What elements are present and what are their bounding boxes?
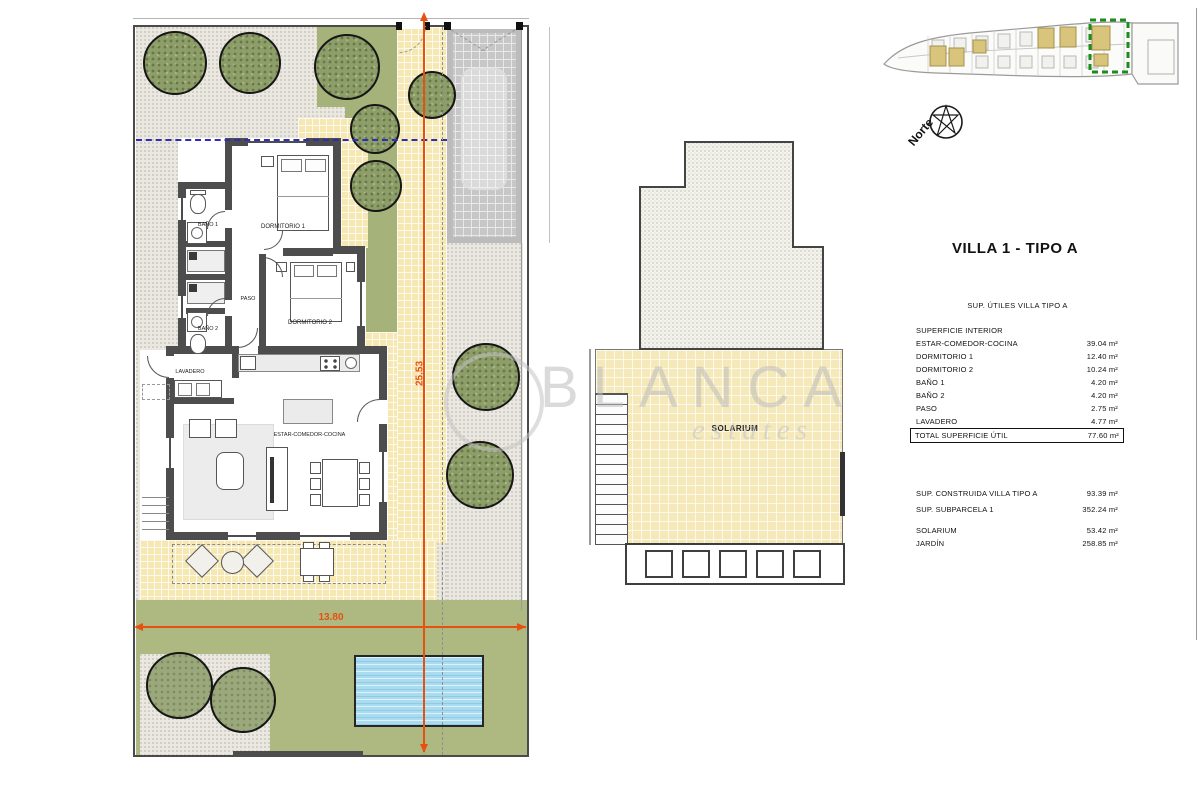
- table-row: SOLARIUM53.42 m²: [916, 524, 1118, 537]
- table-row: ESTAR-COMEDOR-COCINA39.04 m²: [916, 337, 1118, 350]
- car: [461, 68, 507, 190]
- fence: [233, 751, 363, 757]
- table-total-row: TOTAL SUPERFICIE ÚTIL77.60 m²: [910, 428, 1124, 443]
- room-label-bano1: BAÑO 1: [187, 221, 229, 229]
- table-section-header: SUPERFICIE INTERIOR: [916, 324, 1118, 337]
- solarium-roof-plan: [580, 130, 880, 620]
- table-row: BAÑO 24.20 m²: [916, 389, 1118, 402]
- table-row: JARDÍN258.85 m²: [916, 537, 1118, 550]
- table-row: DORMITORIO 210.24 m²: [916, 363, 1118, 376]
- dimension-arrow-left: [134, 623, 143, 631]
- bluedash: [136, 139, 447, 141]
- site-overview-map: [878, 14, 1190, 102]
- summary-table: SUP. CONSTRUIDA VILLA TIPO A93.39 m² SUP…: [916, 486, 1118, 550]
- dimension-arrow-top: [420, 12, 428, 21]
- overview-annex: [1132, 23, 1178, 84]
- compass-circle: [930, 106, 962, 138]
- post: [444, 22, 451, 30]
- table-row: PASO2.75 m²: [916, 402, 1118, 415]
- sheet-border-line: [1196, 8, 1197, 640]
- topline: [133, 18, 529, 19]
- post: [516, 22, 523, 30]
- outline2: [549, 27, 550, 243]
- table-subtitle: SUP. ÚTILES VILLA TIPO A: [945, 301, 1090, 310]
- innline: [521, 27, 522, 610]
- room-label-lavadero: LAVADERO: [168, 368, 212, 376]
- dimension-label-width: 13.80: [296, 612, 366, 623]
- room-label-paso: PASO: [233, 295, 263, 303]
- room-label-bano2: BAÑO 2: [187, 325, 229, 333]
- table-row: SUP. SUBPARCELA 1352.24 m²: [916, 502, 1118, 518]
- north-compass: Norte: [902, 92, 982, 158]
- room-label-estar-comedor-cocina: ESTAR-COMEDOR-COCINA: [262, 431, 357, 439]
- room-label-solarium: SOLARIUM: [690, 424, 780, 433]
- dimension-label-height: 25.53: [415, 352, 426, 396]
- dimension-line-horizontal: [136, 626, 526, 628]
- roof-outline: [640, 142, 823, 349]
- room-label-dormitorio1: DORMITORIO 1: [248, 223, 318, 231]
- table-row: SUP. CONSTRUIDA VILLA TIPO A93.39 m²: [916, 486, 1118, 502]
- plan-sheet: BAÑO 1 DORMITORIO 1 PASO BAÑO 2 DORMITOR…: [0, 0, 1200, 800]
- table-row: BAÑO 14.20 m²: [916, 376, 1118, 389]
- plan-title: VILLA 1 - TIPO A: [925, 240, 1105, 257]
- room-label-dormitorio2: DORMITORIO 2: [275, 319, 345, 327]
- table-row: DORMITORIO 112.40 m²: [916, 350, 1118, 363]
- surface-table: SUPERFICIE INTERIOR ESTAR-COMEDOR-COCINA…: [916, 324, 1118, 428]
- graydash: [442, 27, 443, 755]
- wgap: [451, 24, 516, 29]
- table-row: LAVADERO4.77 m²: [916, 415, 1118, 428]
- dimension-arrow-right: [517, 623, 526, 631]
- dimension-arrow-bottom: [420, 744, 428, 753]
